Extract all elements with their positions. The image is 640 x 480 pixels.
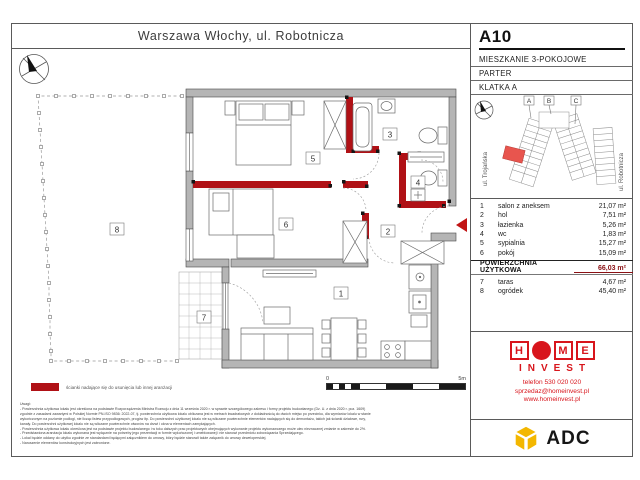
plan-label-wc: 4 <box>416 179 421 188</box>
unit-code: A10 <box>479 27 512 47</box>
bed-single <box>209 189 273 235</box>
room-no: 5 <box>471 240 492 247</box>
outdoor-rows: 7 taras 4,67 m² 8 ogródek 45,40 m² <box>471 278 633 297</box>
building-label-c: C <box>574 98 579 105</box>
home-invest-logo: H O M E <box>471 341 633 360</box>
room-name: sypialnia <box>492 240 576 247</box>
unit-type-row: MIESZKANIE 3-POKOJOWE <box>471 52 633 67</box>
adc-cube-icon <box>513 425 539 452</box>
unit-floor: PARTER <box>471 69 512 78</box>
compass-icon <box>20 55 49 84</box>
unit-header: A10 <box>471 24 633 52</box>
street-label-left: ul. Trojańska <box>483 151 489 186</box>
tv-shelf <box>263 270 316 277</box>
developer-contact: H O M E INVEST telefon 530 020 020 sprze… <box>471 331 633 420</box>
scale-zero-label: 0 <box>326 376 329 383</box>
building-label-b: B <box>547 98 551 105</box>
room-name: taras <box>492 279 576 286</box>
room-no: 7 <box>471 279 492 286</box>
unit-staircase-row: KLATKA A <box>471 80 633 95</box>
buildings-outline <box>509 112 616 187</box>
street-label-right: ul. Robotnicza <box>619 152 625 191</box>
table-row: 3 łazienka 5,26 m² <box>471 221 633 230</box>
plan-label-hol: 2 <box>386 228 391 237</box>
unit-type: MIESZKANIE 3-POKOJOWE <box>471 55 587 64</box>
scale-bar-segments <box>326 383 466 390</box>
plan-label-sypialnia: 5 <box>311 155 316 164</box>
unit-floor-row: PARTER <box>471 66 633 81</box>
scale-max-label: 5m <box>458 376 466 383</box>
bed-double <box>236 101 291 165</box>
room-area: 5,26 m² <box>576 222 633 229</box>
total-area-label: POWIERZCHNIA UŻYTKOWA <box>471 260 574 274</box>
room-no: 3 <box>471 222 492 229</box>
contact-email[interactable]: sprzedaz@homeinvest.pl <box>471 388 633 397</box>
table-row: 8 ogródek 45,40 m² <box>471 287 633 296</box>
room-name: ogródek <box>492 288 576 295</box>
dining-table <box>322 318 366 360</box>
nightstand <box>225 101 235 115</box>
notes-block: Uwagi: - Powierzchnia użytkowa lokalu je… <box>20 402 468 446</box>
removable-wall-swatch <box>31 383 59 391</box>
table-row: 6 pokój 15,09 m² <box>471 248 633 257</box>
legend-label: ścianki nadające się do usunięcia lub in… <box>66 385 172 390</box>
contact-website[interactable]: www.homeinvest.pl <box>471 396 633 405</box>
plan-sheet: Warszawa Włochy, ul. Robotnicza <box>11 23 633 457</box>
table-row: 5 sypialnia 15,27 m² <box>471 239 633 248</box>
note-line: - Naruszenie elementów konstrukcyjnych j… <box>20 441 468 446</box>
desk <box>237 235 274 258</box>
room-no: 8 <box>471 288 492 295</box>
table-row: 1 salon z aneksem 21,07 m² <box>471 202 633 211</box>
room-name: salon z aneksem <box>492 203 576 210</box>
washbasin <box>378 99 395 113</box>
room-no: 1 <box>471 203 492 210</box>
brand-o-circle-icon: O <box>532 341 551 360</box>
room-area: 15,09 m² <box>576 250 633 257</box>
bathtub <box>353 103 372 151</box>
brand-letter: H <box>510 341 529 360</box>
toilet <box>419 127 447 144</box>
brand-letter: E <box>576 341 595 360</box>
table-row: 7 taras 4,67 m² <box>471 278 633 287</box>
coffee-table <box>264 307 290 324</box>
info-panel: A10 MIESZKANIE 3-POKOJOWE PARTER KLATKA … <box>470 24 633 456</box>
furniture <box>209 99 447 360</box>
brand-letter: M <box>554 341 573 360</box>
sheet-title-bar: Warszawa Włochy, ul. Robotnicza <box>12 24 470 49</box>
room-no: 6 <box>471 250 492 257</box>
room-table: 1 salon z aneksem 21,07 m² 2 hol 7,51 m²… <box>471 198 633 296</box>
floor-plan-drawing: 1 2 3 4 5 6 7 8 <box>12 48 470 404</box>
table-row: 4 wc 1,83 m² <box>471 230 633 239</box>
room-area: 7,51 m² <box>576 212 633 219</box>
building-label-a: A <box>527 98 532 105</box>
unit-staircase: KLATKA A <box>471 83 517 92</box>
floor-plan-area: 1 2 3 4 5 6 7 8 <box>12 48 470 456</box>
plan-label-pokoj: 6 <box>284 221 289 230</box>
entrance-arrow-icon <box>456 218 467 232</box>
site-map: A B C ul. Trojańska ul. Robotnicza <box>471 94 633 199</box>
scale-bar: 0 5m <box>326 376 466 390</box>
room-name: pokój <box>492 250 576 257</box>
hall-wardrobe <box>401 241 444 264</box>
nightstand <box>292 101 304 115</box>
unit-code-rule <box>479 48 625 50</box>
wardrobe <box>324 101 346 149</box>
room-area: 15,27 m² <box>576 240 633 247</box>
room-area: 45,40 m² <box>576 288 633 295</box>
legend: ścianki nadające się do usunięcia lub in… <box>31 383 172 391</box>
contact-phone: telefon 530 020 020 <box>471 379 633 388</box>
room-no: 2 <box>471 212 492 219</box>
room-name: łazienka <box>492 222 576 229</box>
room-area: 1,83 m² <box>576 231 633 238</box>
plan-label-taras: 7 <box>202 314 207 323</box>
adc-wordmark: ADC <box>546 428 590 450</box>
site-compass-icon <box>475 101 493 119</box>
total-area-value: 66,03 m² <box>574 265 633 273</box>
room-name: hol <box>492 212 576 219</box>
kitchen-units <box>381 265 431 360</box>
plan-label-ogrodek: 8 <box>115 226 120 235</box>
table-row: 2 hol 7,51 m² <box>471 211 633 220</box>
sofa <box>241 328 313 360</box>
room-area: 4,67 m² <box>576 279 633 286</box>
room-area: 21,07 m² <box>576 203 633 210</box>
total-area-row: POWIERZCHNIA UŻYTKOWA 66,03 m² <box>471 260 633 275</box>
hall-wardrobe <box>343 221 367 263</box>
brand-subtitle: INVEST <box>471 363 633 374</box>
room-no: 4 <box>471 231 492 238</box>
room-name: wc <box>492 231 576 238</box>
small-basin <box>411 189 425 201</box>
adc-logo: ADC <box>471 419 633 457</box>
plan-label-lazienka: 3 <box>388 131 393 140</box>
site-map-drawing: A B C ul. Trojańska ul. Robotnicza <box>471 94 633 197</box>
sheet-title: Warszawa Włochy, ul. Robotnicza <box>138 29 344 43</box>
plan-label-salon: 1 <box>339 290 344 299</box>
